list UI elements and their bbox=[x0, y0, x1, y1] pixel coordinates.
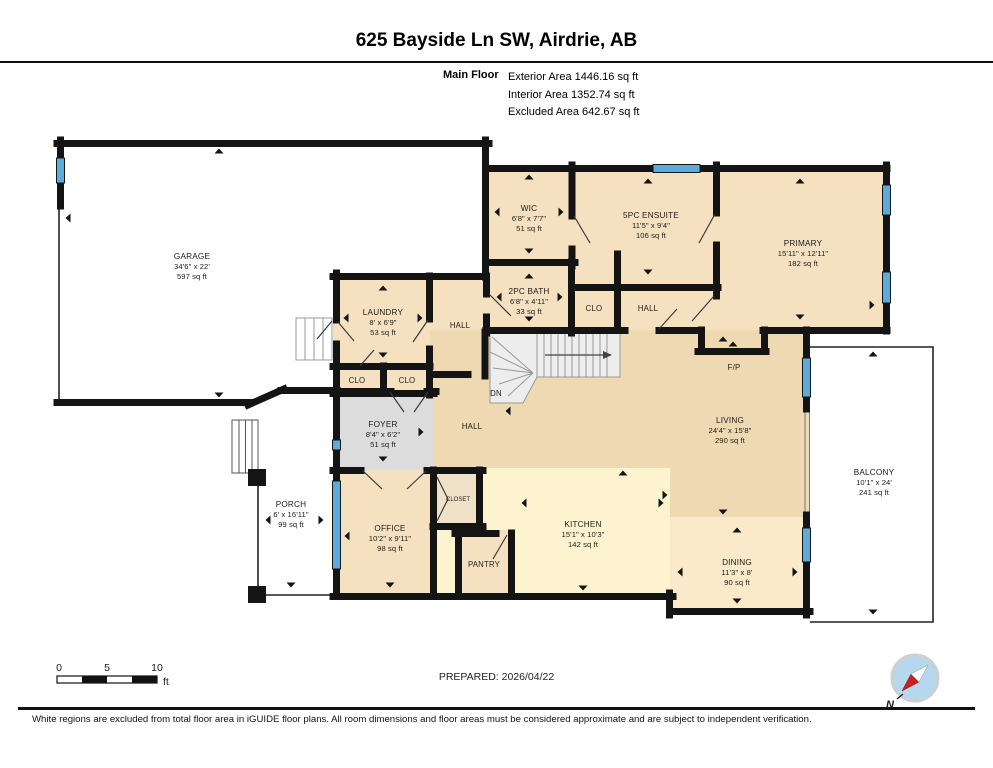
label-fireplace: F/P bbox=[728, 363, 741, 372]
svg-text:241 sq ft: 241 sq ft bbox=[859, 488, 890, 497]
window-foyer bbox=[333, 440, 341, 450]
room-living-lower bbox=[670, 470, 810, 520]
svg-text:142 sq ft: 142 sq ft bbox=[568, 540, 599, 549]
window-primary-1 bbox=[883, 185, 891, 215]
compass-icon: N bbox=[886, 655, 938, 711]
label-foyer: FOYER bbox=[368, 420, 397, 429]
svg-text:51 sq ft: 51 sq ft bbox=[370, 440, 396, 449]
svg-text:597 sq ft: 597 sq ft bbox=[177, 272, 208, 281]
label-closet: CLOSET bbox=[446, 497, 470, 503]
svg-text:8'4" x 6'2": 8'4" x 6'2" bbox=[366, 430, 401, 439]
svg-text:53 sq ft: 53 sq ft bbox=[370, 328, 396, 337]
svg-text:51 sq ft: 51 sq ft bbox=[516, 224, 542, 233]
label-bath: 2PC BATH bbox=[508, 287, 549, 296]
window-primary-2 bbox=[883, 272, 891, 303]
svg-text:6' x 16'11": 6' x 16'11" bbox=[273, 510, 308, 519]
label-dining: DINING bbox=[722, 558, 752, 567]
svg-text:182 sq ft: 182 sq ft bbox=[788, 259, 819, 268]
window-ensuite bbox=[653, 165, 700, 173]
svg-text:33 sq ft: 33 sq ft bbox=[516, 307, 542, 316]
label-laundry: LAUNDRY bbox=[363, 308, 404, 317]
svg-text:24'4" x 15'8": 24'4" x 15'8" bbox=[709, 426, 752, 435]
svg-text:11'5" x 9'4": 11'5" x 9'4" bbox=[632, 221, 670, 230]
garage-staircase bbox=[296, 318, 332, 360]
porch-post-bottom bbox=[248, 586, 266, 603]
svg-text:11'3" x 8': 11'3" x 8' bbox=[722, 568, 753, 577]
label-porch: PORCH bbox=[276, 500, 307, 509]
svg-text:90 sq ft: 90 sq ft bbox=[724, 578, 750, 587]
label-pantry: PANTRY bbox=[468, 560, 501, 569]
svg-text:290 sq ft: 290 sq ft bbox=[715, 436, 746, 445]
svg-text:15'11" x 12'11": 15'11" x 12'11" bbox=[778, 249, 829, 258]
label-hall-upper: HALL bbox=[450, 321, 471, 330]
svg-text:15'1" x 10'3": 15'1" x 10'3" bbox=[562, 530, 605, 539]
label-clo-1: CLO bbox=[349, 376, 366, 385]
porch-steps bbox=[232, 420, 258, 473]
bottom-rule bbox=[18, 707, 975, 710]
label-wic: WIC bbox=[521, 204, 538, 213]
label-office: OFFICE bbox=[374, 524, 406, 533]
label-balcony: BALCONY bbox=[854, 468, 895, 477]
label-primary: PRIMARY bbox=[784, 239, 823, 248]
window-living bbox=[803, 358, 811, 397]
floor-plan-svg: GARAGE 34'6" x 22' 597 sq ft WIC 6'8" x … bbox=[0, 0, 993, 768]
svg-text:10'1" x 24': 10'1" x 24' bbox=[856, 478, 892, 487]
svg-text:34'6" x 22': 34'6" x 22' bbox=[174, 262, 210, 271]
svg-text:106 sq ft: 106 sq ft bbox=[636, 231, 667, 240]
svg-text:99 sq ft: 99 sq ft bbox=[278, 520, 304, 529]
label-hall-main: HALL bbox=[462, 422, 483, 431]
svg-text:98 sq ft: 98 sq ft bbox=[377, 544, 403, 553]
label-garage: GARAGE bbox=[174, 252, 211, 261]
porch-post-top bbox=[248, 469, 266, 486]
label-stairs-dn: DN bbox=[490, 389, 502, 398]
window-office bbox=[333, 481, 341, 569]
room-fills bbox=[57, 140, 887, 615]
svg-text:10'2" x 9'11": 10'2" x 9'11" bbox=[369, 534, 412, 543]
disclaimer-text: White regions are excluded from total fl… bbox=[32, 714, 973, 725]
window-garage bbox=[57, 158, 65, 183]
floor-plan-page: 625 Bayside Ln SW, Airdrie, AB Main Floo… bbox=[0, 0, 993, 768]
label-living: LIVING bbox=[716, 416, 744, 425]
svg-text:6'8" x 4'11": 6'8" x 4'11" bbox=[510, 297, 548, 306]
prepared-date: PREPARED: 2026/04/22 bbox=[0, 671, 993, 683]
label-kitchen: KITCHEN bbox=[564, 520, 601, 529]
window-dining bbox=[803, 528, 811, 562]
label-clo-3: CLO bbox=[586, 304, 603, 313]
svg-text:6'8" x 7'7": 6'8" x 7'7" bbox=[512, 214, 547, 223]
svg-text:8' x 6'9": 8' x 6'9" bbox=[369, 318, 396, 327]
label-ensuite: 5PC ENSUITE bbox=[623, 211, 679, 220]
label-hall-bedwing: HALL bbox=[638, 304, 659, 313]
label-clo-2: CLO bbox=[399, 376, 416, 385]
